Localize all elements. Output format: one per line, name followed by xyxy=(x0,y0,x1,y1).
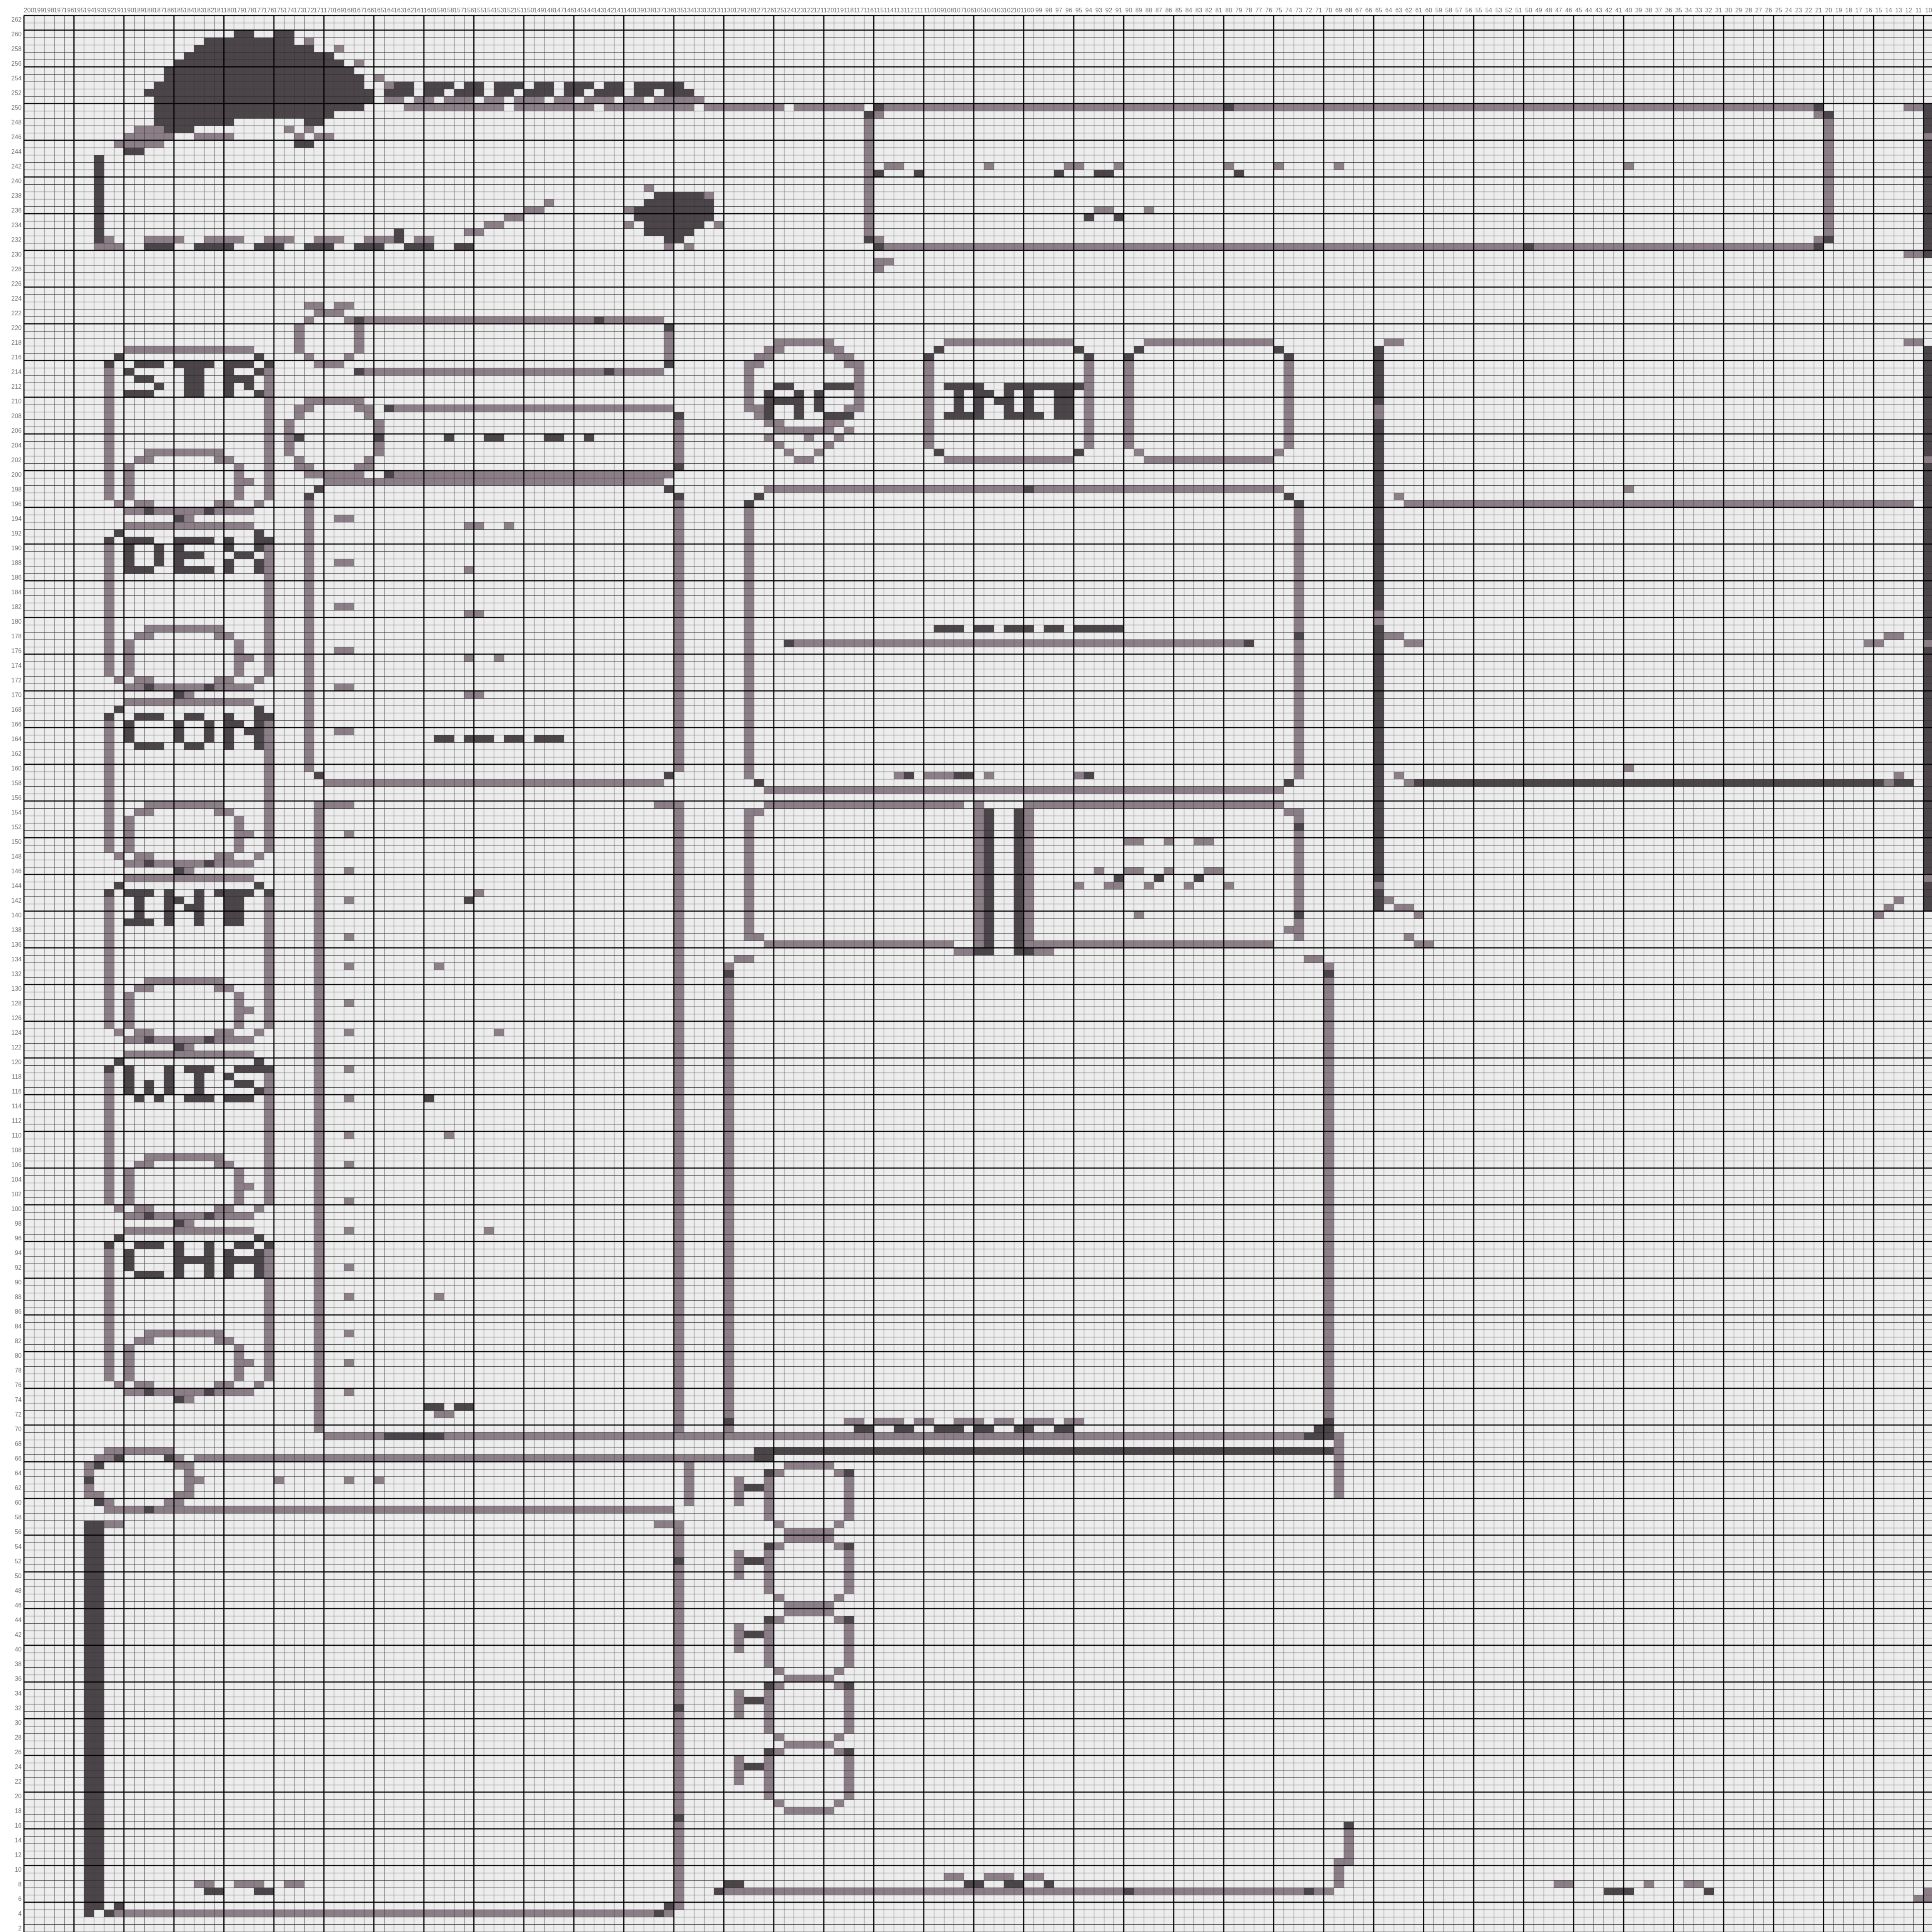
chart-page: CHAR SHEET BLANKET1.jpg by Created on ch… xyxy=(0,0,1932,1932)
knitting-chart-canvas[interactable] xyxy=(0,0,1932,1932)
